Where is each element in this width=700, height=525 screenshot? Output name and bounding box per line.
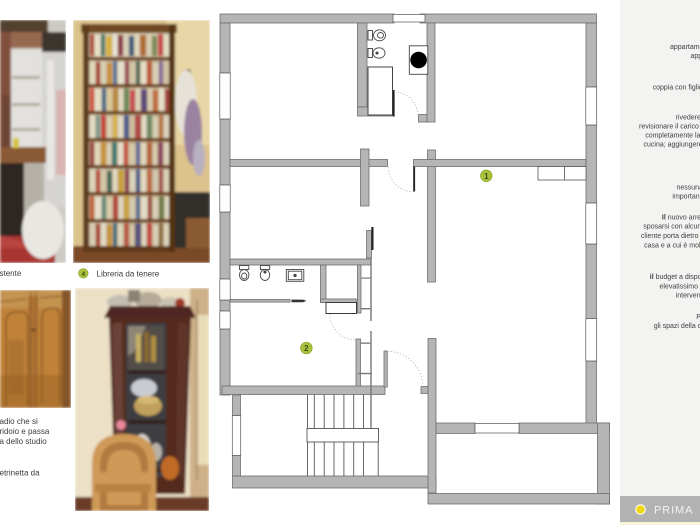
svg-text:rivedere: rivedere: [676, 115, 700, 122]
svg-text:PRIMA: PRIMA: [654, 505, 693, 517]
svg-text:il budget a disposizione: il budget a disposizione: [650, 274, 700, 281]
svg-text:ridoio e passa: ridoio e passa: [0, 427, 50, 436]
svg-text:appena: appena: [691, 53, 700, 60]
svg-text:casa e a cui è molto: casa e a cui è molto: [644, 242, 700, 249]
svg-text:sposarsi con alcuni: sposarsi con alcuni: [643, 224, 700, 231]
svg-text:1: 1: [484, 172, 489, 181]
svg-text:a dello studio: a dello studio: [0, 437, 47, 446]
svg-text:appartamento: appartamento: [670, 44, 700, 51]
svg-text:gli spazi della casa: gli spazi della casa: [654, 323, 700, 330]
svg-text:revisionare il carico: revisionare il carico: [639, 123, 699, 130]
svg-text:cliente porta dietro: cliente porta dietro: [641, 233, 699, 240]
svg-text:4: 4: [81, 271, 85, 278]
svg-text:completamente la: completamente la: [645, 133, 700, 140]
svg-text:Il nuovo arredo: Il nuovo arredo: [662, 214, 700, 221]
svg-text:elevatissimo ma: elevatissimo ma: [660, 283, 700, 290]
svg-text:etrinetta da: etrinetta da: [0, 469, 40, 478]
svg-text:intervento: intervento: [676, 293, 700, 300]
svg-text:2: 2: [304, 344, 309, 353]
svg-text:coppia con figlio p: coppia con figlio p: [653, 85, 700, 92]
svg-text:adio che si: adio che si: [0, 417, 38, 426]
svg-text:nessuna: nessuna: [677, 185, 700, 192]
svg-text:importanza: importanza: [672, 194, 700, 201]
svg-text:stente: stente: [0, 269, 22, 278]
svg-text:Più: Più: [696, 314, 700, 321]
svg-text:cucina; aggiungere: cucina; aggiungere: [644, 142, 700, 149]
svg-text:Libreria da tenere: Libreria da tenere: [97, 269, 160, 278]
